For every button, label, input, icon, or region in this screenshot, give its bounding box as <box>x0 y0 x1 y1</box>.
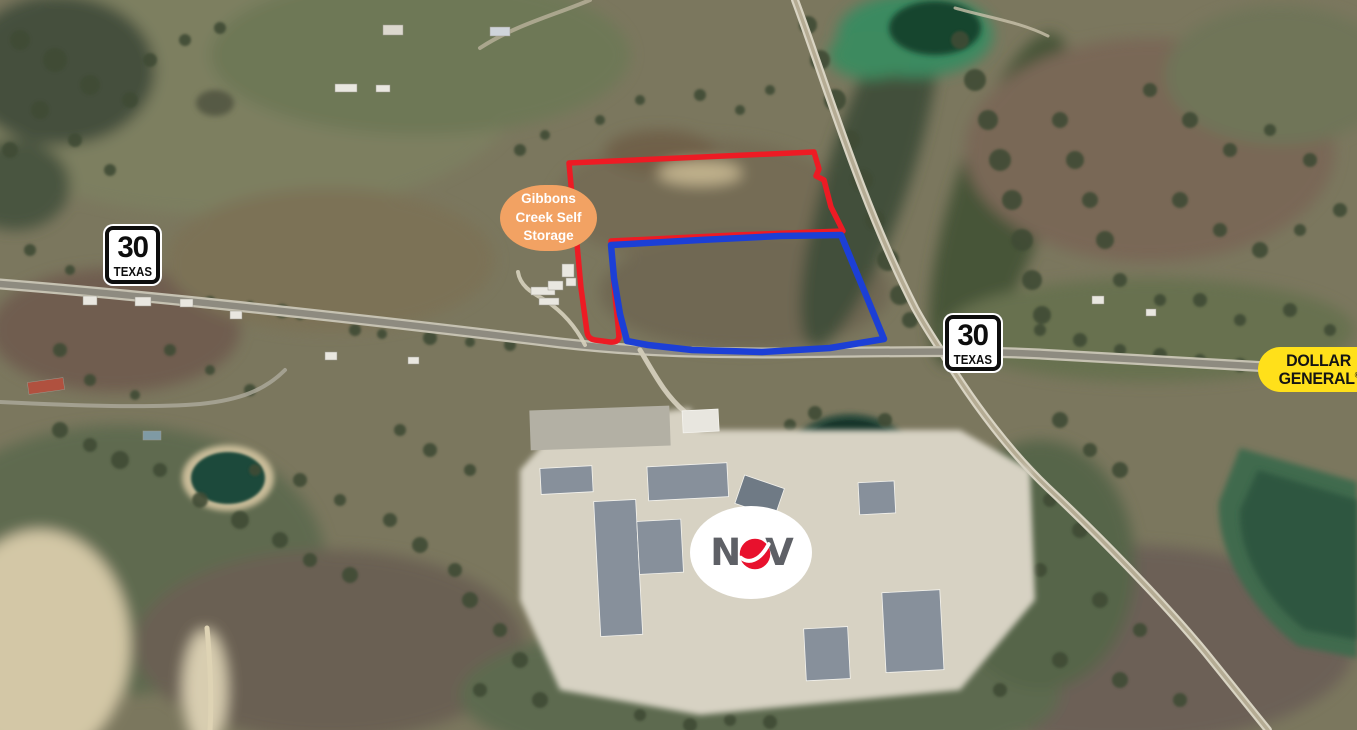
teal-roof-house <box>143 431 161 440</box>
pond-small-top-left <box>196 90 234 116</box>
satellite-imagery <box>0 0 1357 730</box>
aerial-map: 30 TEXAS 30 TEXAS Gibbons Creek Self Sto… <box>0 0 1357 730</box>
route-30-shield-west: 30 TEXAS <box>103 224 162 286</box>
nov-logo: N V <box>710 534 792 571</box>
dollar-general-line1: DOLLAR <box>1287 352 1352 370</box>
storage-badge: Gibbons Creek Self Storage <box>500 185 597 251</box>
nov-logo-badge: N V <box>690 506 812 599</box>
storage-badge-line1: Gibbons <box>521 190 576 209</box>
dollar-general-line2: GENERAL® <box>1279 370 1357 388</box>
route-number: 30 <box>958 321 989 351</box>
dollar-general-badge: DOLLAR GENERAL® <box>1258 347 1357 392</box>
storage-badge-line2: Creek Self <box>515 209 581 228</box>
route-number: 30 <box>117 233 148 263</box>
route-state-label: TEXAS <box>954 353 992 367</box>
storage-badge-line3: Storage <box>523 227 573 246</box>
nov-parking-lot <box>529 406 670 451</box>
route-30-shield-east: 30 TEXAS <box>943 313 1003 373</box>
pond-top-right <box>889 1 981 55</box>
nov-letter-n: N <box>710 534 739 571</box>
nov-o-globe-icon <box>739 538 771 570</box>
route-state-label: TEXAS <box>113 265 151 279</box>
